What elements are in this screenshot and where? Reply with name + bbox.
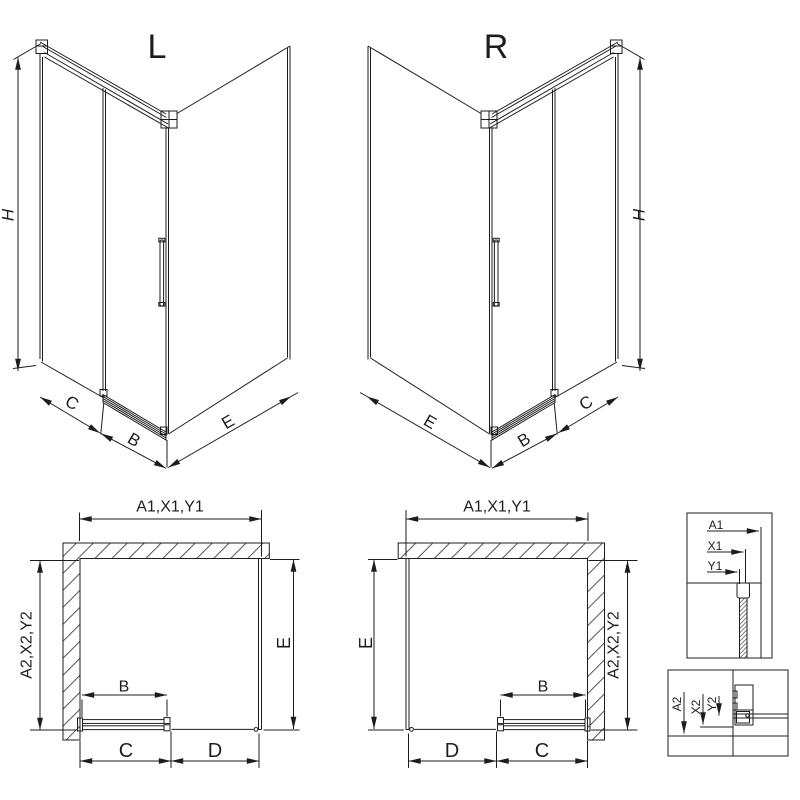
iso-left-dim-c: C [62, 392, 82, 415]
plan-left-dim-c: C [119, 740, 133, 762]
iso-left-dim-e: E [218, 411, 237, 433]
iso-view-left: L H C B E [0, 28, 298, 468]
detail-bottom-label-x2: X2 [689, 699, 703, 714]
iso-left-geometry [13, 40, 298, 468]
plan-left-dim-d: D [208, 740, 222, 762]
iso-right-dim-h: H [630, 208, 649, 221]
plan-left-dim-top: A1,X1,Y1 [136, 499, 204, 516]
diagram-svg: L H C B E R H E B C A1,X1,Y1 A2,X2,Y2 E … [0, 0, 800, 800]
detail-top-label-y1: Y1 [708, 559, 723, 573]
plan-right-dim-d: D [445, 740, 459, 762]
plan-view-right: A1,X1,Y1 A2,X2,Y2 E B D C [356, 499, 638, 769]
plan-right-dim-e: E [356, 637, 376, 649]
plan-left-dim-b: B [119, 679, 130, 696]
iso-left-label: L [148, 28, 167, 66]
plan-left-dim-side: A2,X2,Y2 [19, 611, 36, 679]
plan-right-dim-b: B [538, 679, 549, 696]
plan-right-wall-hatch [398, 543, 604, 740]
iso-left-dim-h: H [0, 208, 18, 221]
iso-view-right: R H E B C [360, 28, 649, 468]
plan-right-dim-side: A2,X2,Y2 [606, 611, 623, 679]
plan-view-left: A1,X1,Y1 A2,X2,Y2 E B C D [19, 499, 300, 769]
iso-right-dim-e: E [420, 411, 439, 433]
plan-left-dim-e: E [274, 637, 294, 649]
shower-enclosure-diagram: L H C B E R H E B C A1,X1,Y1 A2,X2,Y2 E … [0, 0, 800, 800]
detail-bottom-label-a2: A2 [670, 696, 684, 711]
iso-right-geometry [360, 40, 645, 468]
plan-left-wall-hatch [63, 543, 269, 740]
detail-top-label-x1: X1 [708, 539, 723, 553]
wall-profile-hatch-strip [740, 598, 748, 658]
plan-right-dim-top: A1,X1,Y1 [463, 499, 531, 516]
bottom-profile-detail: A2 X2 Y2 [668, 670, 788, 756]
iso-right-label: R [484, 28, 509, 66]
detail-bottom-label-y2: Y2 [705, 696, 719, 711]
wall-profile-detail-top: A1 X1 Y1 [687, 513, 772, 658]
iso-right-dim-c: C [576, 392, 596, 415]
bottom-rail-profile [735, 685, 753, 725]
detail-top-label-a1: A1 [709, 518, 724, 532]
plan-right-dim-c: C [535, 740, 549, 762]
